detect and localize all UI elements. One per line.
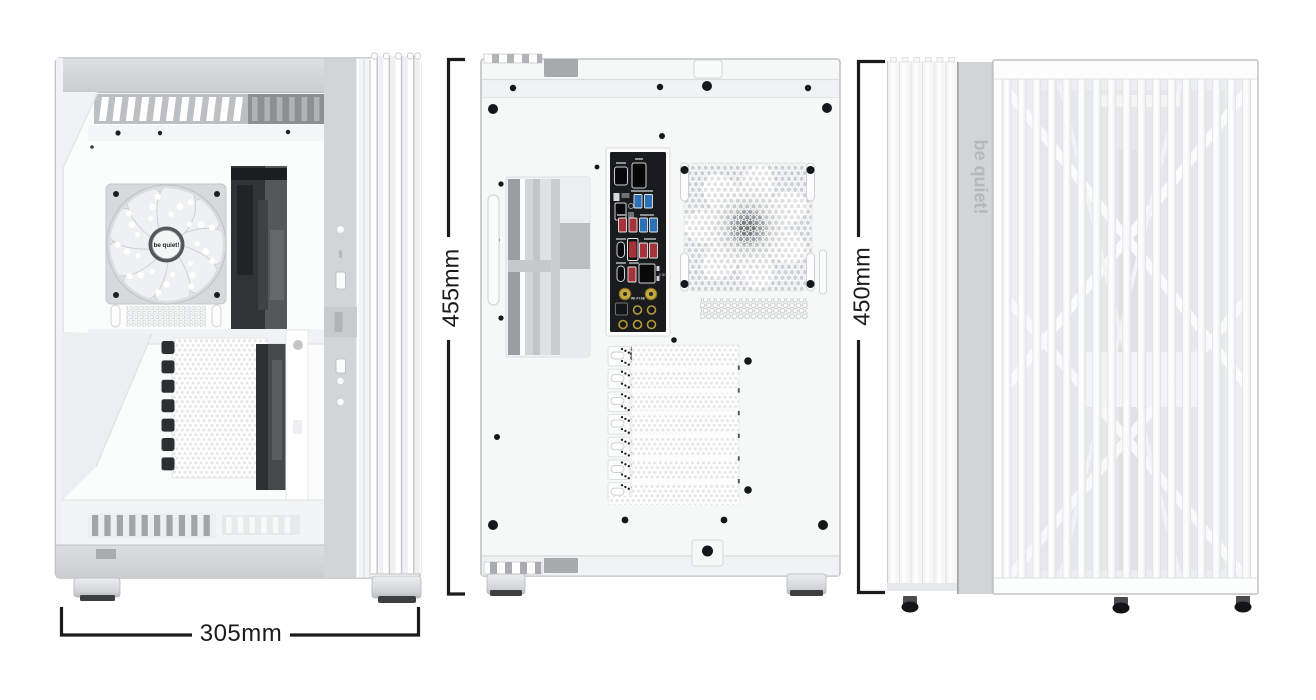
svg-text:WI-FI 6E: WI-FI 6E xyxy=(631,297,646,301)
svg-text:be quiet!: be quiet! xyxy=(971,140,991,215)
svg-text:305mm: 305mm xyxy=(200,620,283,647)
svg-text:455mm: 455mm xyxy=(438,249,464,327)
svg-text:2.5G: 2.5G xyxy=(659,272,668,277)
svg-text:450mm: 450mm xyxy=(849,247,875,325)
svg-text:be quiet!: be quiet! xyxy=(154,242,180,249)
